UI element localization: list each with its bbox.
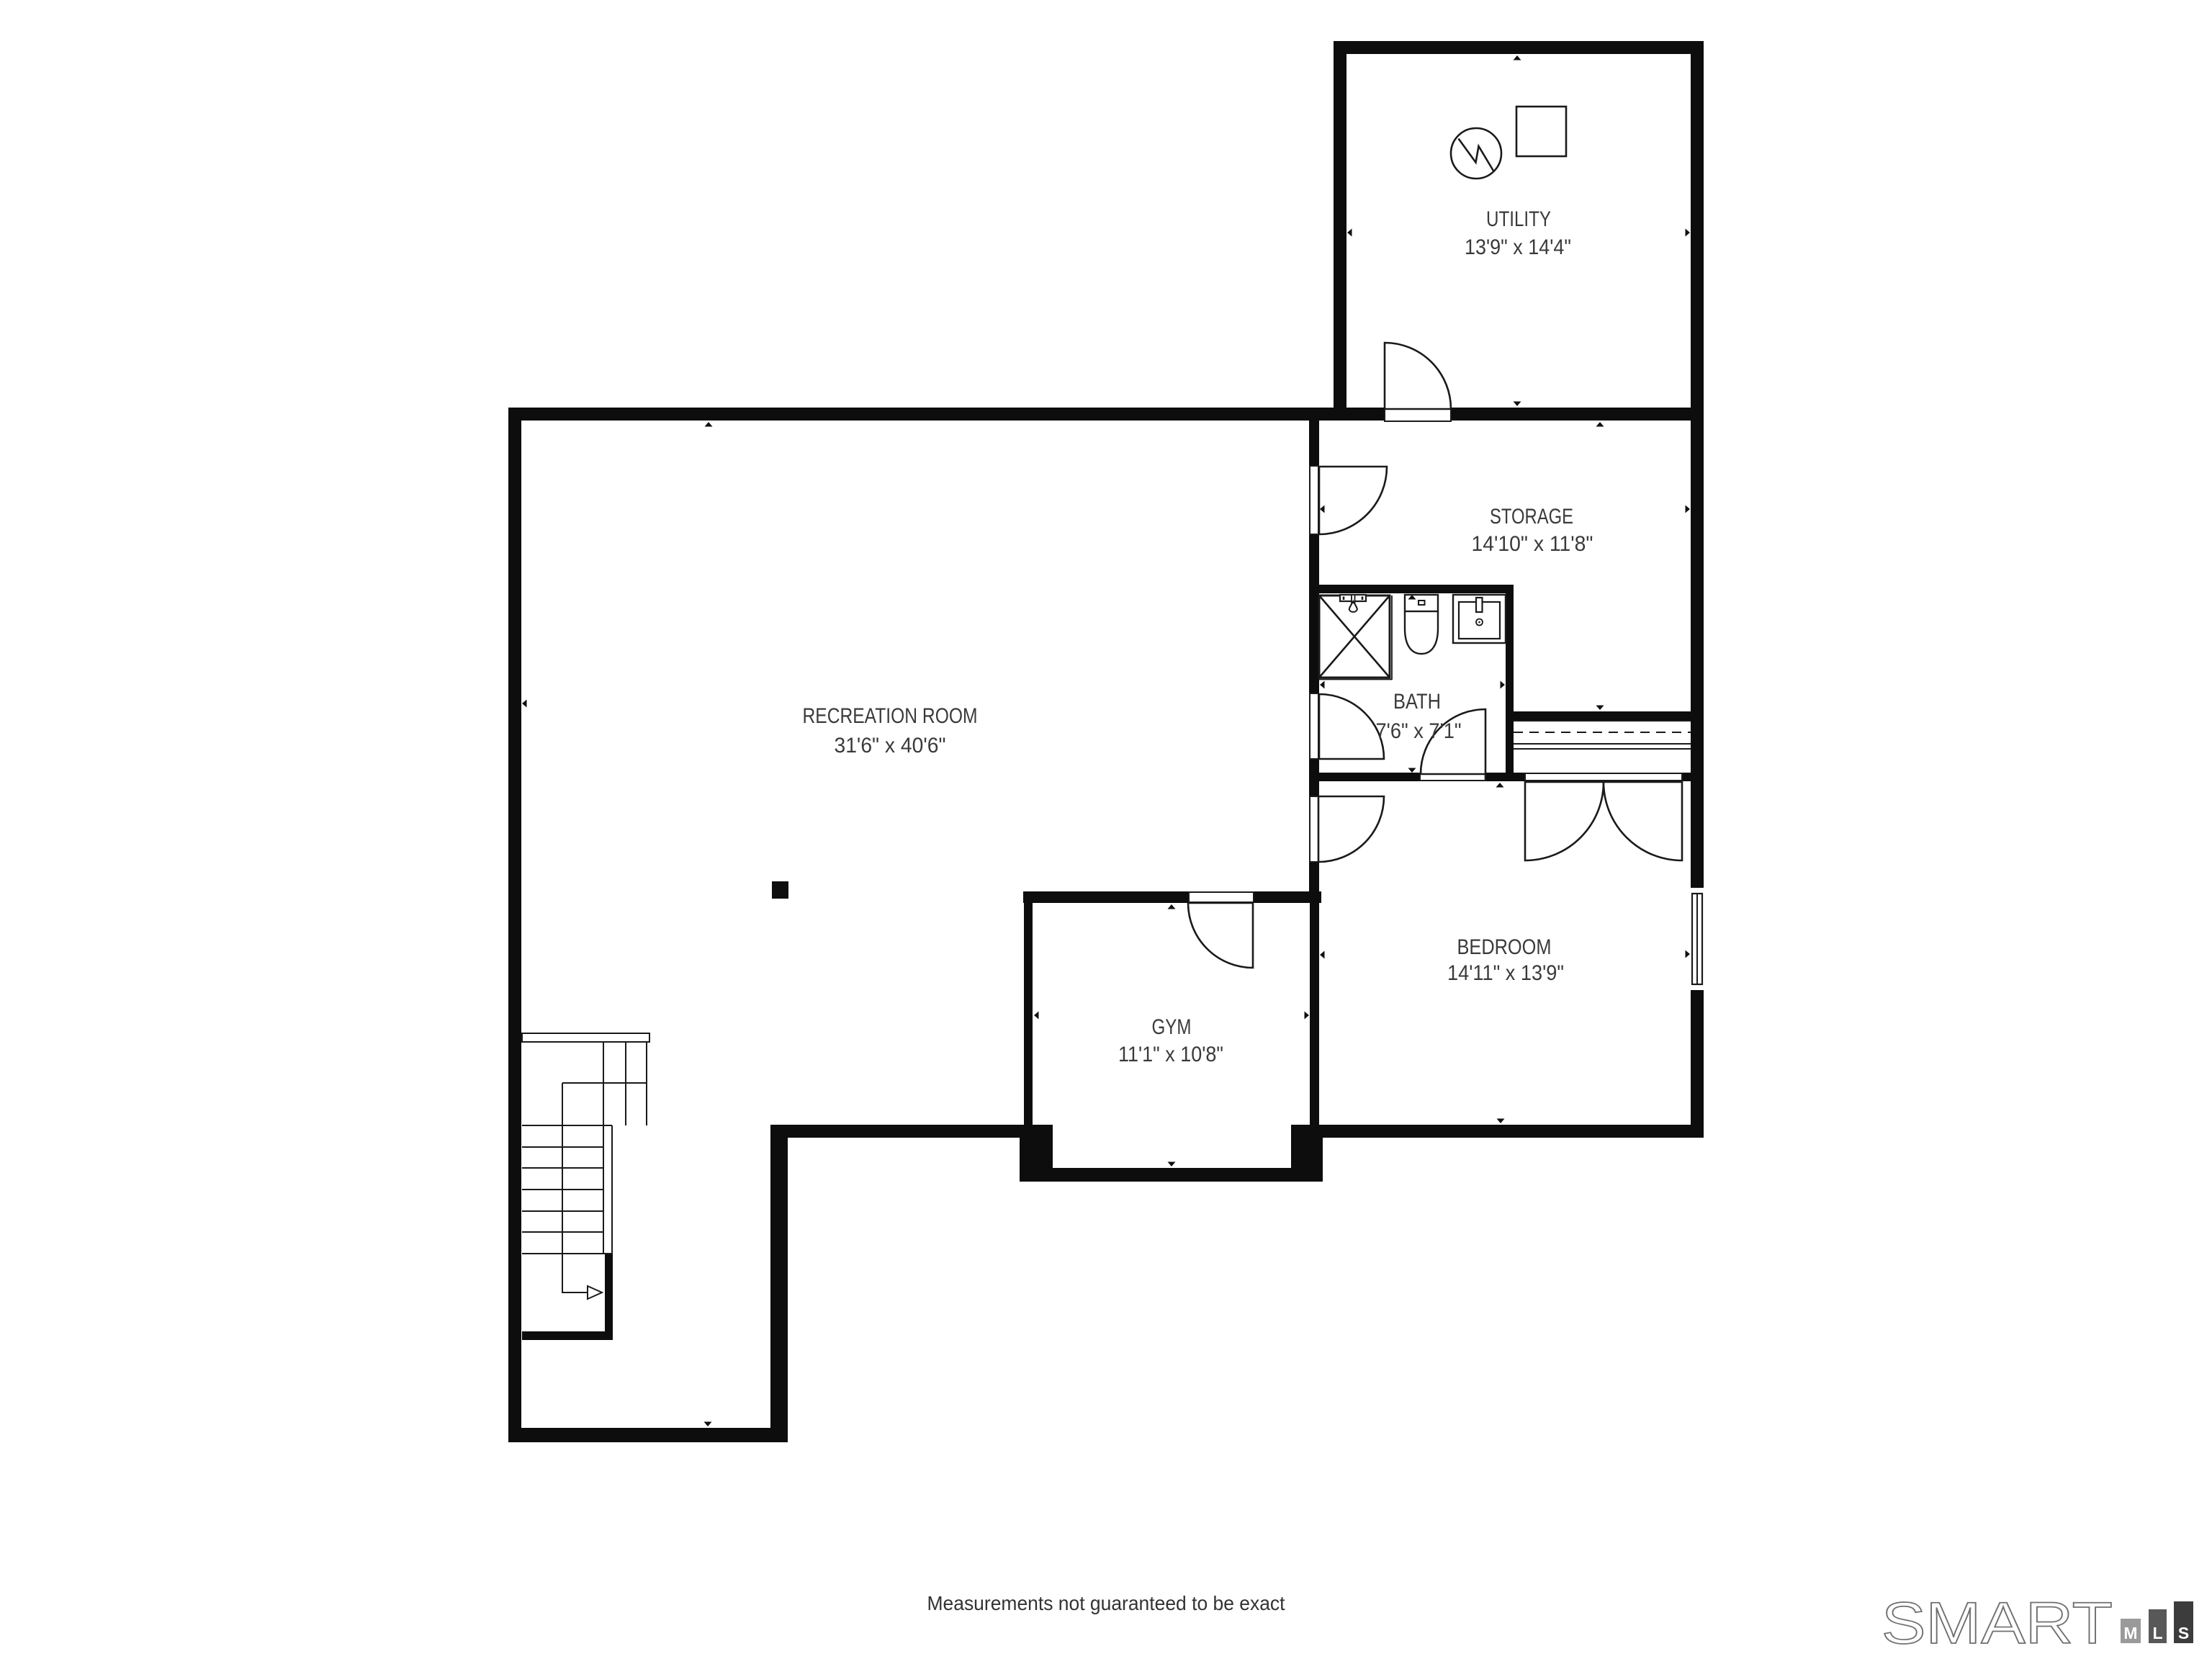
svg-text:GYM: GYM [1152, 1015, 1192, 1039]
svg-text:13'9" x 14'4": 13'9" x 14'4" [1465, 235, 1571, 259]
svg-text:STORAGE: STORAGE [1490, 505, 1573, 529]
svg-text:UTILITY: UTILITY [1486, 207, 1551, 231]
svg-text:BEDROOM: BEDROOM [1457, 935, 1552, 959]
svg-text:Measurements not guaranteed to: Measurements not guaranteed to be exact [927, 1592, 1285, 1614]
svg-text:BATH: BATH [1393, 690, 1441, 714]
svg-text:SMART: SMART [1881, 1591, 2113, 1656]
svg-text:S: S [2178, 1624, 2189, 1642]
svg-text:RECREATION ROOM: RECREATION ROOM [803, 704, 978, 728]
svg-text:L: L [2152, 1624, 2162, 1642]
svg-text:14'10" x 11'8": 14'10" x 11'8" [1472, 532, 1593, 556]
svg-text:M: M [2123, 1624, 2137, 1642]
svg-text:11'1" x 10'8": 11'1" x 10'8" [1118, 1043, 1223, 1066]
svg-text:14'11" x 13'9": 14'11" x 13'9" [1447, 961, 1564, 985]
svg-text:31'6" x 40'6": 31'6" x 40'6" [835, 734, 946, 757]
svg-text:7'6" x 7'1": 7'6" x 7'1" [1376, 719, 1462, 743]
